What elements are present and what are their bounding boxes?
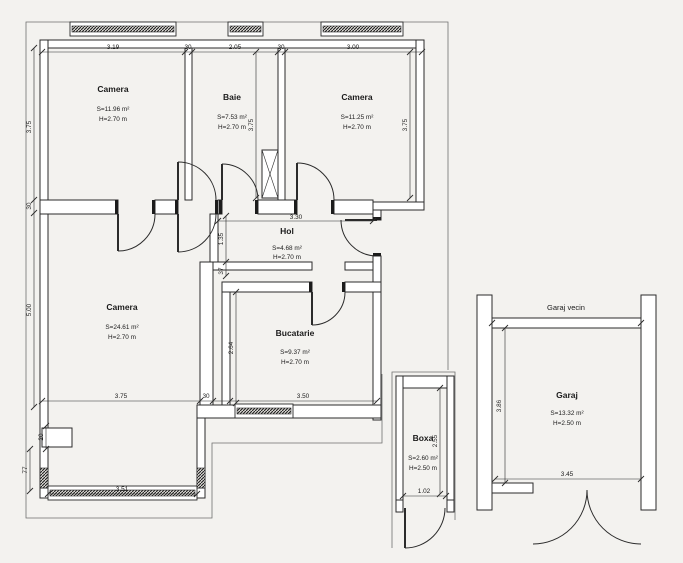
room-area-label: S=24.61 m² — [105, 324, 138, 331]
dimension-label: 20 — [38, 433, 45, 441]
door-jamb — [152, 200, 155, 214]
wall-right-upper — [416, 40, 424, 202]
garage-wall-top — [492, 318, 641, 328]
wall-bucatarie-top-2 — [345, 282, 381, 292]
door-jamb — [309, 282, 312, 292]
room-name-label: Bucatarie — [276, 328, 315, 338]
boxa-wall-right — [447, 376, 454, 508]
garaj-vecin-label: Garaj vecin — [547, 303, 585, 312]
door-jamb — [255, 200, 258, 214]
room-name-label: Camera — [341, 92, 372, 102]
room-name-label: Garaj — [556, 390, 578, 400]
room-height-label: H=2.70 m — [343, 124, 371, 131]
dimension-label: 1.35 — [218, 232, 225, 245]
wall-camera1-baie — [185, 48, 192, 200]
floor-plan-svg: 3.19 30 2.05 30 3.00 3.75 30 5.00 20 77 … — [0, 0, 683, 563]
wall-middle-1 — [40, 200, 118, 214]
dimension-label: 2.05 — [229, 44, 242, 51]
room-height-label: H=2.70 m — [273, 254, 301, 261]
window-jamb — [40, 468, 48, 488]
room-height-label: H=2.70 m — [281, 359, 309, 366]
boxa-wall-left — [396, 376, 403, 508]
dimension-label: 37 — [218, 267, 225, 275]
door-jamb — [175, 200, 178, 214]
dimension-label: 30 — [184, 44, 192, 51]
dimension-label: 3.00 — [347, 44, 360, 51]
dimension-label: 30 — [26, 202, 33, 210]
window-glass — [323, 26, 401, 32]
window-glass — [230, 26, 261, 32]
dimension-label: 3.45 — [561, 471, 574, 478]
dimension-label: 3.86 — [496, 399, 503, 412]
dimension-label: 77 — [22, 466, 29, 474]
room-area-label: S=13.32 m² — [550, 410, 583, 417]
garage-wall-bottom — [492, 483, 533, 493]
door-jamb — [373, 253, 381, 256]
room-name-label: Baie — [223, 92, 241, 102]
room-area-label: S=9.37 m² — [280, 349, 310, 356]
door-jamb — [115, 200, 118, 214]
boxa-wall-bottom-right — [447, 500, 454, 512]
dimension-label: 1.02 — [418, 488, 431, 495]
room-area-label: S=11.25 m² — [341, 114, 374, 121]
dimension-label: 3.75 — [26, 120, 33, 133]
dimension-label: 30 — [277, 44, 285, 51]
wall-hol-left — [210, 214, 218, 262]
room-area-label: S=7.53 m² — [217, 114, 247, 121]
garage-wall-right — [641, 295, 656, 510]
window-jamb — [197, 468, 205, 488]
wall-step — [373, 202, 424, 210]
room-area-label: S=4.68 m² — [272, 245, 302, 252]
door-jamb — [342, 282, 345, 292]
door-jamb — [331, 200, 334, 214]
room-height-label: H=2.70 m — [218, 124, 246, 131]
wall-middle-5 — [334, 200, 373, 214]
dimension-label: 3.75 — [115, 393, 128, 400]
room-height-label: H=2.50 m — [409, 465, 437, 472]
room-name-label: Boxa — [413, 433, 434, 443]
room-area-label: S=2.60 m² — [408, 455, 438, 462]
floor-plan-page: 3.19 30 2.05 30 3.00 3.75 30 5.00 20 77 … — [0, 0, 683, 563]
window-glass — [237, 408, 291, 414]
dimension-label: 3.19 — [107, 44, 120, 51]
dimension-label: 3.75 — [402, 118, 409, 131]
dimension-label: 3.75 — [248, 118, 255, 131]
door-jamb — [294, 200, 297, 214]
dimension-label: 3.50 — [297, 393, 310, 400]
dimension-label: 5.00 — [26, 303, 33, 316]
boxa-wall-bottom-left — [396, 500, 403, 512]
window-glass — [72, 26, 174, 32]
wall-camera3-right — [200, 262, 213, 405]
dimension-label: 3.51 — [116, 486, 129, 493]
dimension-label: 30 — [202, 393, 210, 400]
wall-bay-notch — [42, 428, 72, 447]
wall-middle-2 — [155, 200, 178, 214]
door-jamb — [215, 200, 218, 214]
door-jamb — [219, 200, 222, 214]
room-area-label: S=11.96 m² — [97, 106, 130, 113]
room-name-label: Camera — [106, 302, 137, 312]
wall-right-lower — [373, 256, 381, 420]
dimension-label: 3.30 — [290, 214, 303, 221]
wall-bucatarie-top-1 — [222, 282, 312, 292]
room-height-label: H=2.50 m — [553, 420, 581, 427]
room-height-label: H=2.70 m — [108, 334, 136, 341]
wall-middle-4 — [258, 200, 297, 214]
garage-wall-left — [477, 295, 492, 510]
dimension-label: 2.64 — [228, 341, 235, 354]
room-name-label: Hol — [280, 226, 294, 236]
wall-baie-camera2 — [278, 48, 285, 200]
room-name-label: Camera — [97, 84, 128, 94]
boxa-wall-top — [396, 376, 454, 388]
wall-hol-bottom-2 — [345, 262, 373, 270]
room-height-label: H=2.70 m — [99, 116, 127, 123]
